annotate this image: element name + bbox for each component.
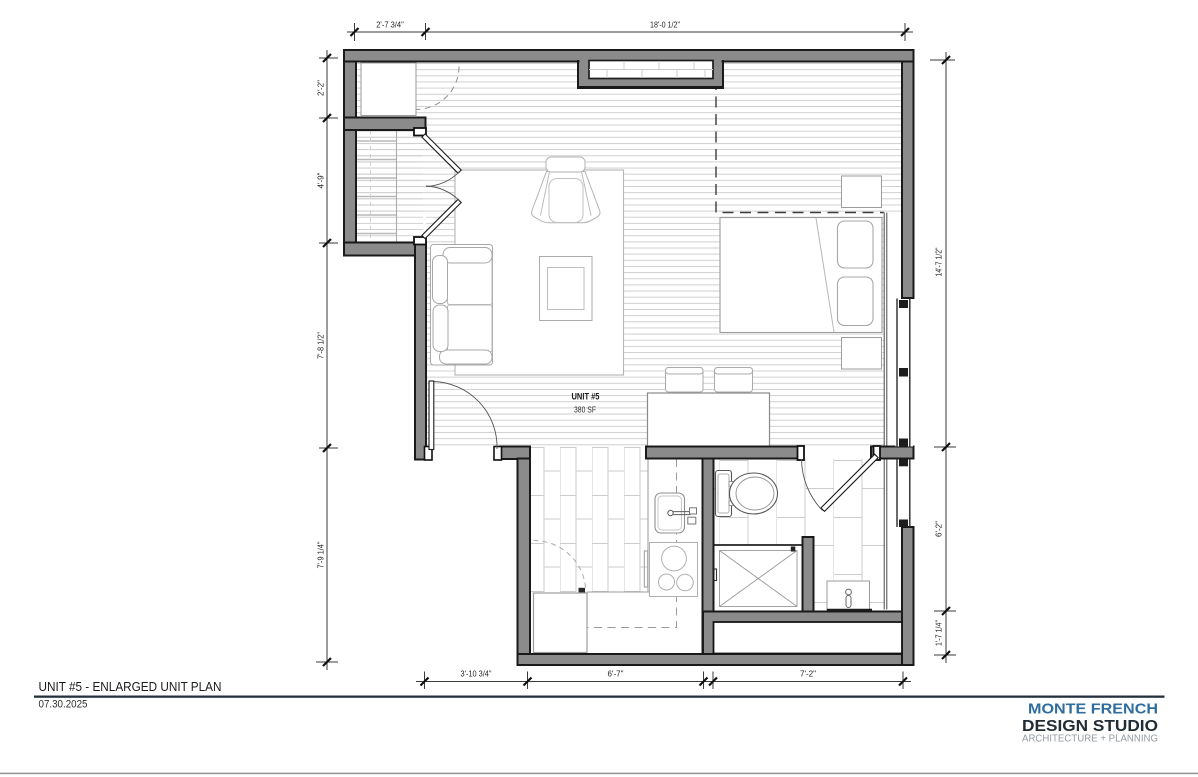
svg-text:14'-7 1/2": 14'-7 1/2" <box>934 248 944 277</box>
svg-text:4'-9": 4'-9" <box>316 173 326 189</box>
svg-text:UNIT #5: UNIT #5 <box>572 392 600 402</box>
svg-text:18'-0 1/2": 18'-0 1/2" <box>650 20 680 30</box>
svg-text:1'-7 1/4": 1'-7 1/4" <box>934 620 944 646</box>
svg-text:7'-2": 7'-2" <box>800 669 816 679</box>
svg-text:7'-9 1/4": 7'-9 1/4" <box>316 542 326 569</box>
svg-text:6'-7": 6'-7" <box>608 669 624 679</box>
svg-text:2'-7 3/4": 2'-7 3/4" <box>376 20 404 30</box>
svg-text:3'-10 3/4": 3'-10 3/4" <box>461 669 492 679</box>
svg-text:6'-2": 6'-2" <box>934 521 944 537</box>
svg-text:UNIT #5 - ENLARGED UNIT PLAN: UNIT #5 - ENLARGED UNIT PLAN <box>39 680 222 694</box>
svg-text:2'-2": 2'-2" <box>316 80 326 96</box>
svg-text:380 SF: 380 SF <box>574 405 596 415</box>
svg-text:07.30.2025: 07.30.2025 <box>39 699 88 711</box>
svg-text:MONTE FRENCH: MONTE FRENCH <box>1028 701 1158 718</box>
svg-text:DESIGN STUDIO: DESIGN STUDIO <box>1022 718 1158 735</box>
svg-text:ARCHITECTURE + PLANNING: ARCHITECTURE + PLANNING <box>1022 734 1158 745</box>
svg-text:7'-8 1/2": 7'-8 1/2" <box>316 332 326 359</box>
